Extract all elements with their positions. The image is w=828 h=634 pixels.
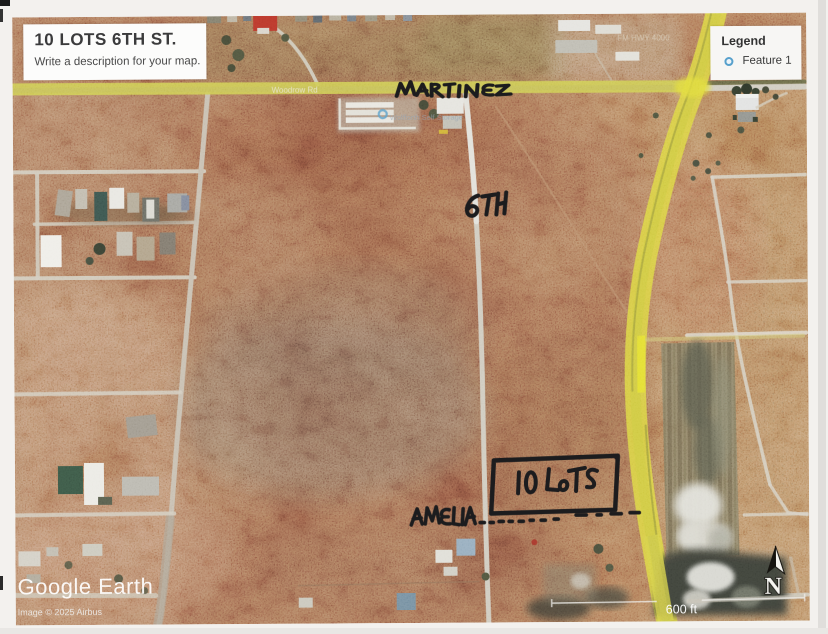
svg-text:N: N <box>765 574 783 600</box>
